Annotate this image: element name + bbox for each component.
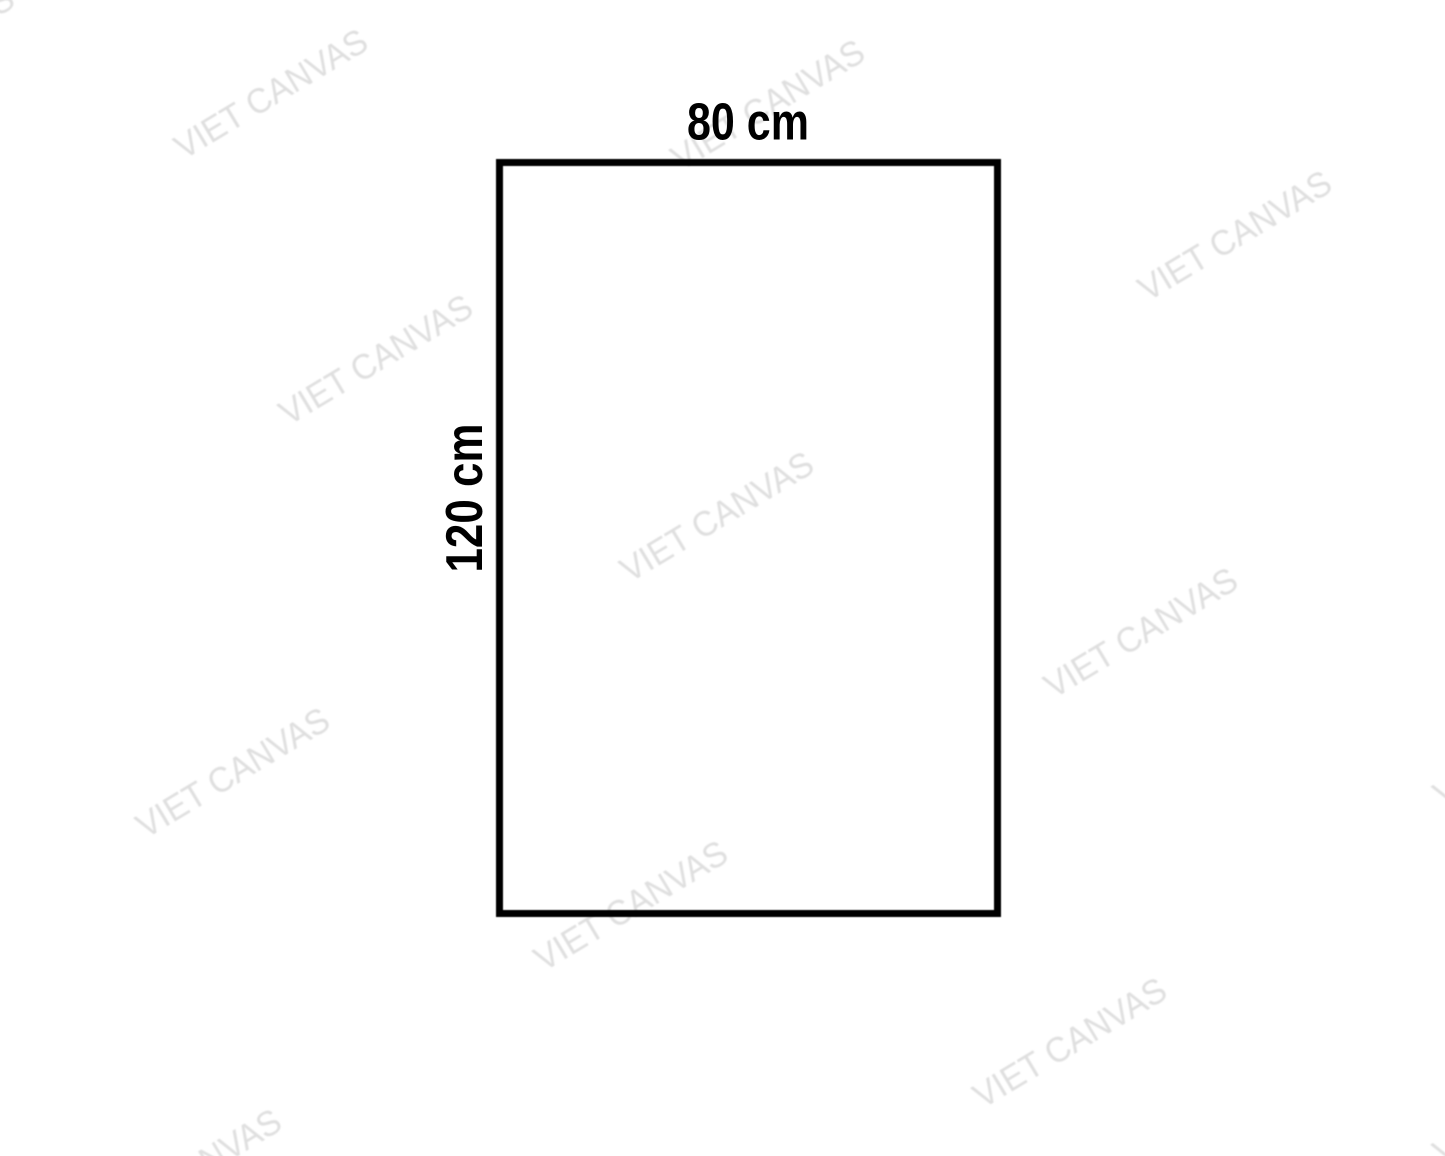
svg-text:80 cm: 80 cm — [687, 94, 809, 152]
svg-text:120 cm: 120 cm — [436, 424, 494, 573]
